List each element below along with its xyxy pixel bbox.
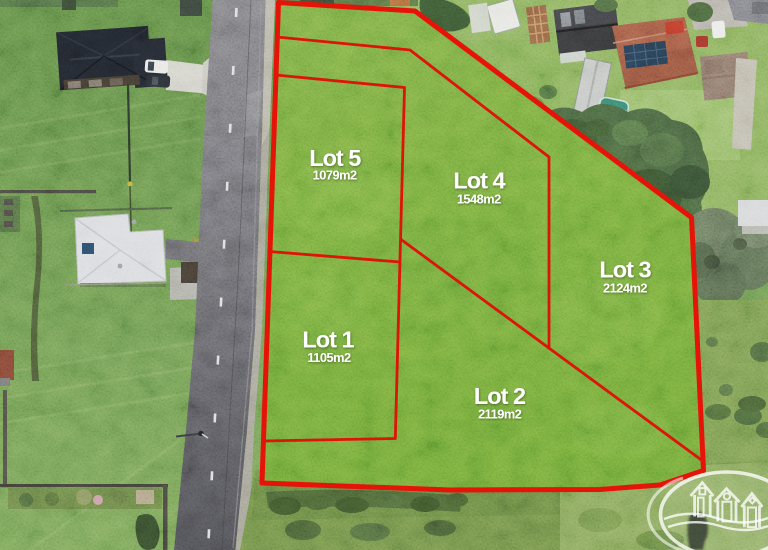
svg-text:1079m2: 1079m2: [313, 167, 357, 182]
svg-text:1105m2: 1105m2: [307, 350, 351, 365]
svg-text:Lot 2: Lot 2: [474, 383, 526, 409]
svg-text:2119m2: 2119m2: [478, 407, 522, 422]
svg-text:Lot 4: Lot 4: [453, 168, 505, 194]
svg-text:1548m2: 1548m2: [457, 192, 501, 207]
svg-text:Lot 1: Lot 1: [302, 327, 354, 353]
svg-text:Lot 3: Lot 3: [599, 257, 651, 283]
svg-text:2124m2: 2124m2: [603, 281, 647, 296]
